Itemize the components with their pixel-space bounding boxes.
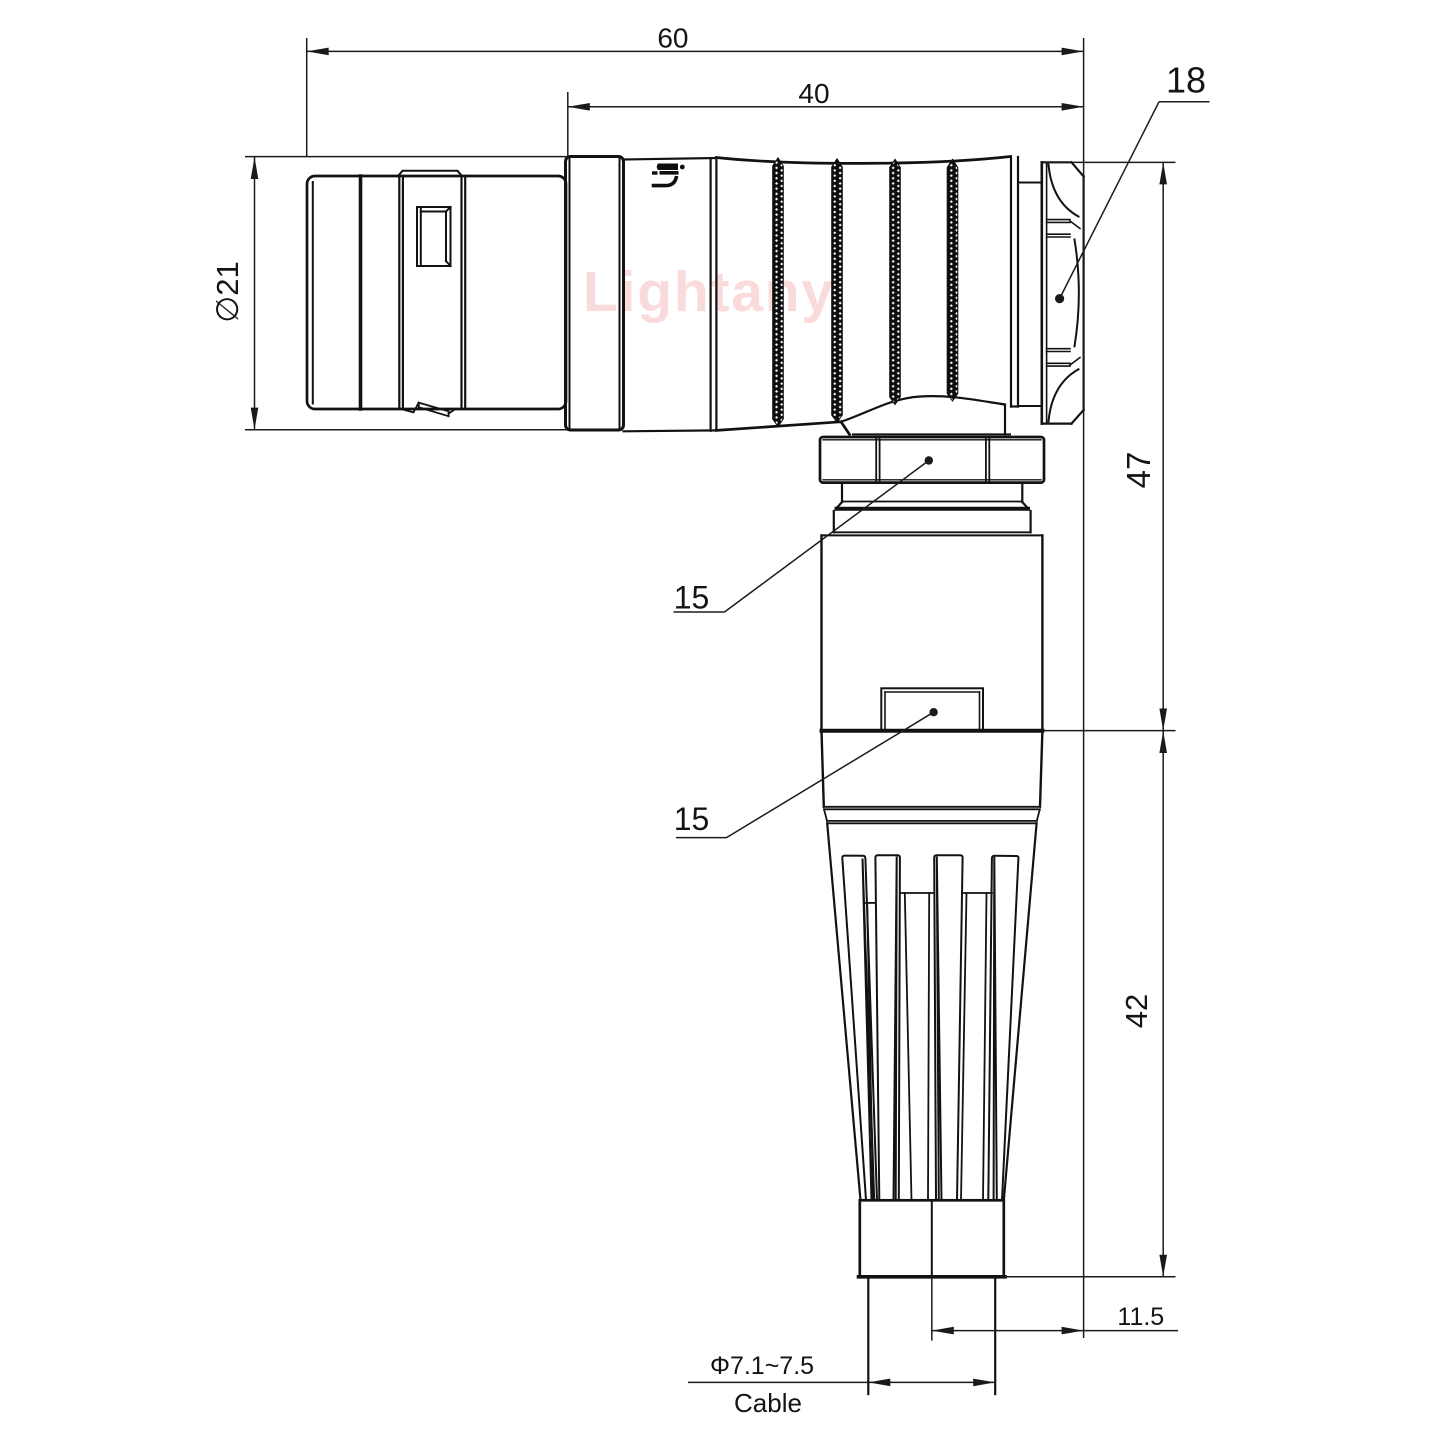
svg-text:40: 40 (798, 78, 829, 109)
svg-text:11.5: 11.5 (1117, 1303, 1164, 1331)
svg-text:Φ7.1~7.5: Φ7.1~7.5 (710, 1352, 814, 1380)
svg-text:47: 47 (1120, 452, 1157, 489)
svg-text:15: 15 (674, 801, 710, 837)
svg-text:Cable: Cable (734, 1388, 802, 1418)
svg-text:15: 15 (674, 580, 710, 616)
svg-text:Lightany: Lightany (583, 260, 835, 324)
svg-text:60: 60 (657, 23, 688, 54)
svg-text:∅21: ∅21 (210, 261, 245, 323)
svg-text:42: 42 (1119, 994, 1154, 1028)
svg-text:18: 18 (1166, 60, 1206, 101)
